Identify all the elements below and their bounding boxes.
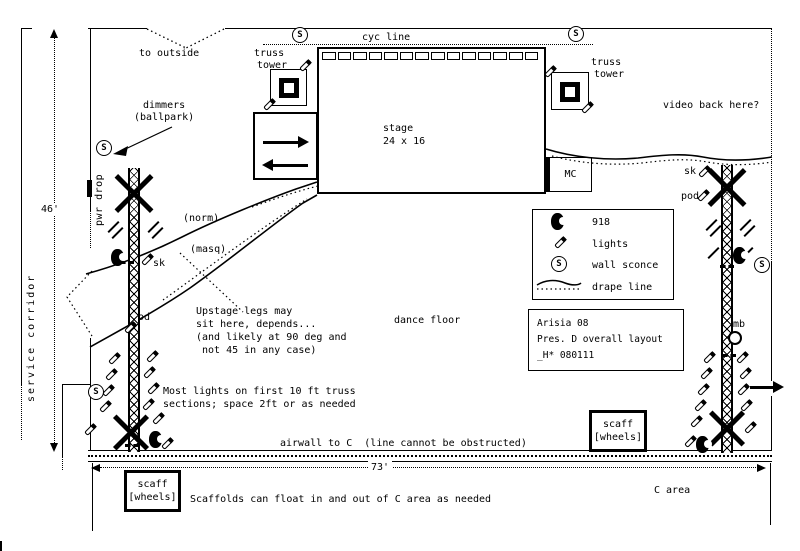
right-truss-bottom-base	[707, 408, 747, 448]
wall-sconce-icon: S	[292, 27, 308, 43]
918-icon	[111, 249, 124, 266]
918-icon	[696, 436, 709, 453]
918-icon	[149, 431, 162, 448]
exit-arrow-right-icon	[750, 386, 774, 389]
dimmers-leader-arrowhead	[113, 146, 128, 156]
dim-73-label: 73'	[368, 461, 392, 474]
truss-section-tick	[125, 444, 139, 447]
drape-line-right	[546, 149, 772, 160]
wall-sconce-icon: S	[88, 384, 104, 400]
dim-46-label: 46'	[38, 203, 62, 216]
drape-line-norm-dotted	[252, 186, 318, 207]
918-icon	[551, 213, 564, 230]
arrow-left-icon	[272, 164, 308, 167]
wall-sconce-icon: S	[568, 26, 584, 42]
wall-sconce-icon: S	[551, 256, 567, 272]
left-truss-top-base	[112, 171, 156, 215]
upstage-leader-dotted	[180, 253, 243, 312]
wall-opening-chevron	[67, 271, 92, 336]
wall-sconce-icon: S	[754, 257, 770, 273]
truss-section-tick	[722, 354, 736, 357]
drape-line-masq-dotted	[163, 199, 307, 300]
floor-plan-canvas: service corridor 46' to outside dimmers …	[0, 0, 800, 551]
wall-sconce-icon: S	[96, 140, 112, 156]
arrow-right-icon	[263, 141, 299, 144]
right-truss-top-base	[705, 165, 749, 209]
918-icon	[733, 247, 746, 264]
mb-marker	[728, 331, 742, 345]
freeform-lines-overlay	[0, 0, 800, 551]
to-outside-opening-dashes	[147, 29, 224, 48]
truss-section-tick	[720, 265, 734, 268]
